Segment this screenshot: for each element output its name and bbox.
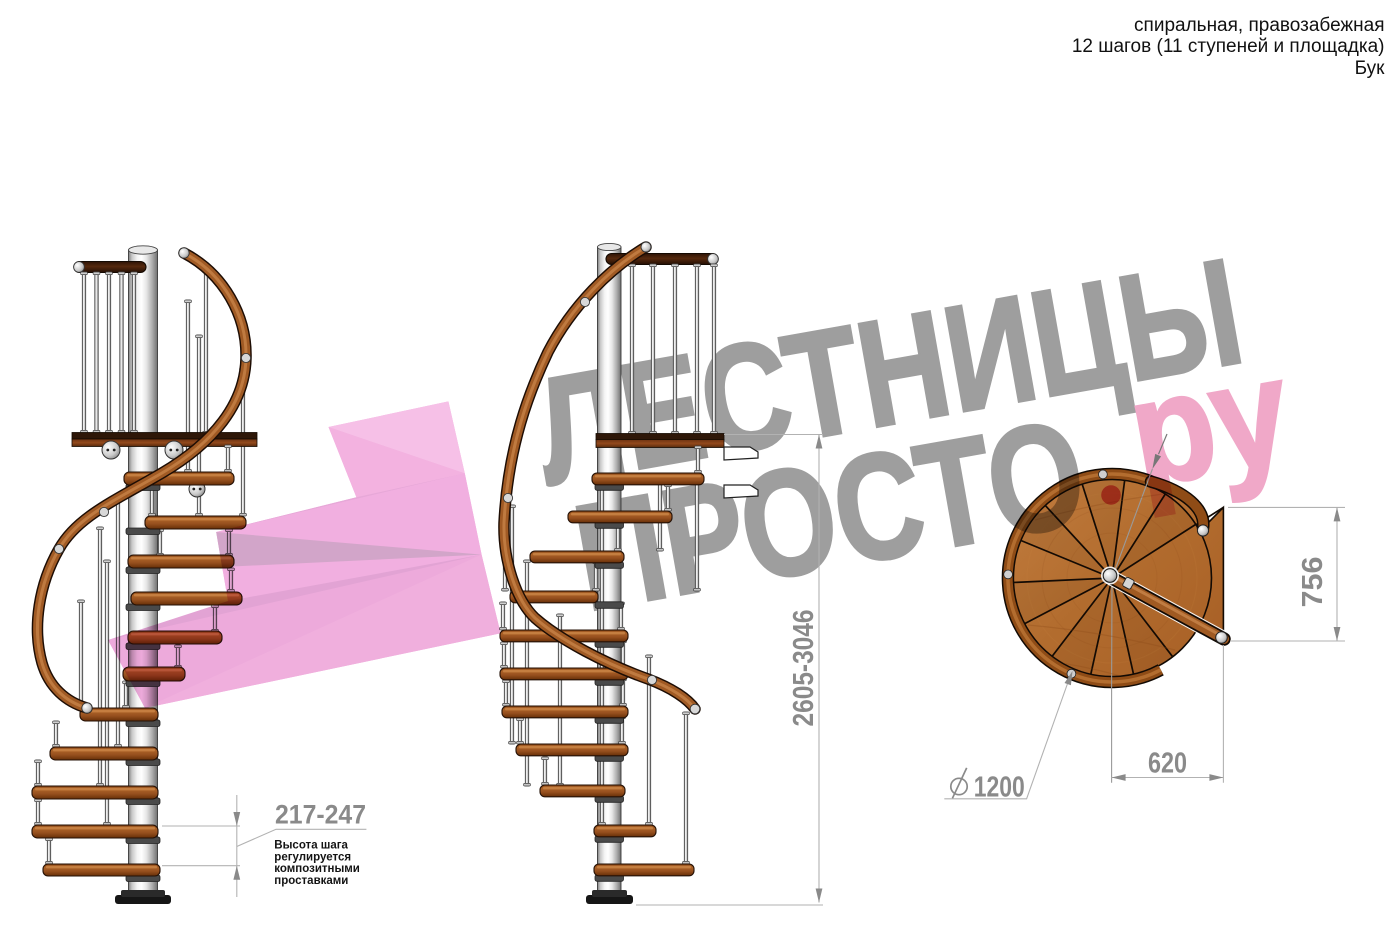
svg-text:ПРОСТО: ПРОСТО (563, 387, 1097, 643)
svg-text:ру: ру (1117, 325, 1301, 519)
